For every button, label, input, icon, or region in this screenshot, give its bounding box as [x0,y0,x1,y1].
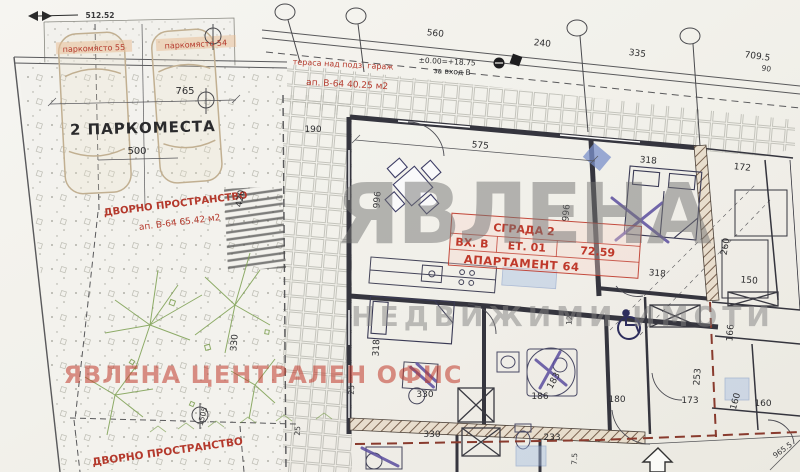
floorplan-drawing: 512.52 паркомясто 55 паркомясто 54 765 2… [0,0,800,472]
floorplan-scan: 512.52 паркомясто 55 паркомясто 54 765 2… [0,0,800,472]
scan-shading [0,0,800,472]
